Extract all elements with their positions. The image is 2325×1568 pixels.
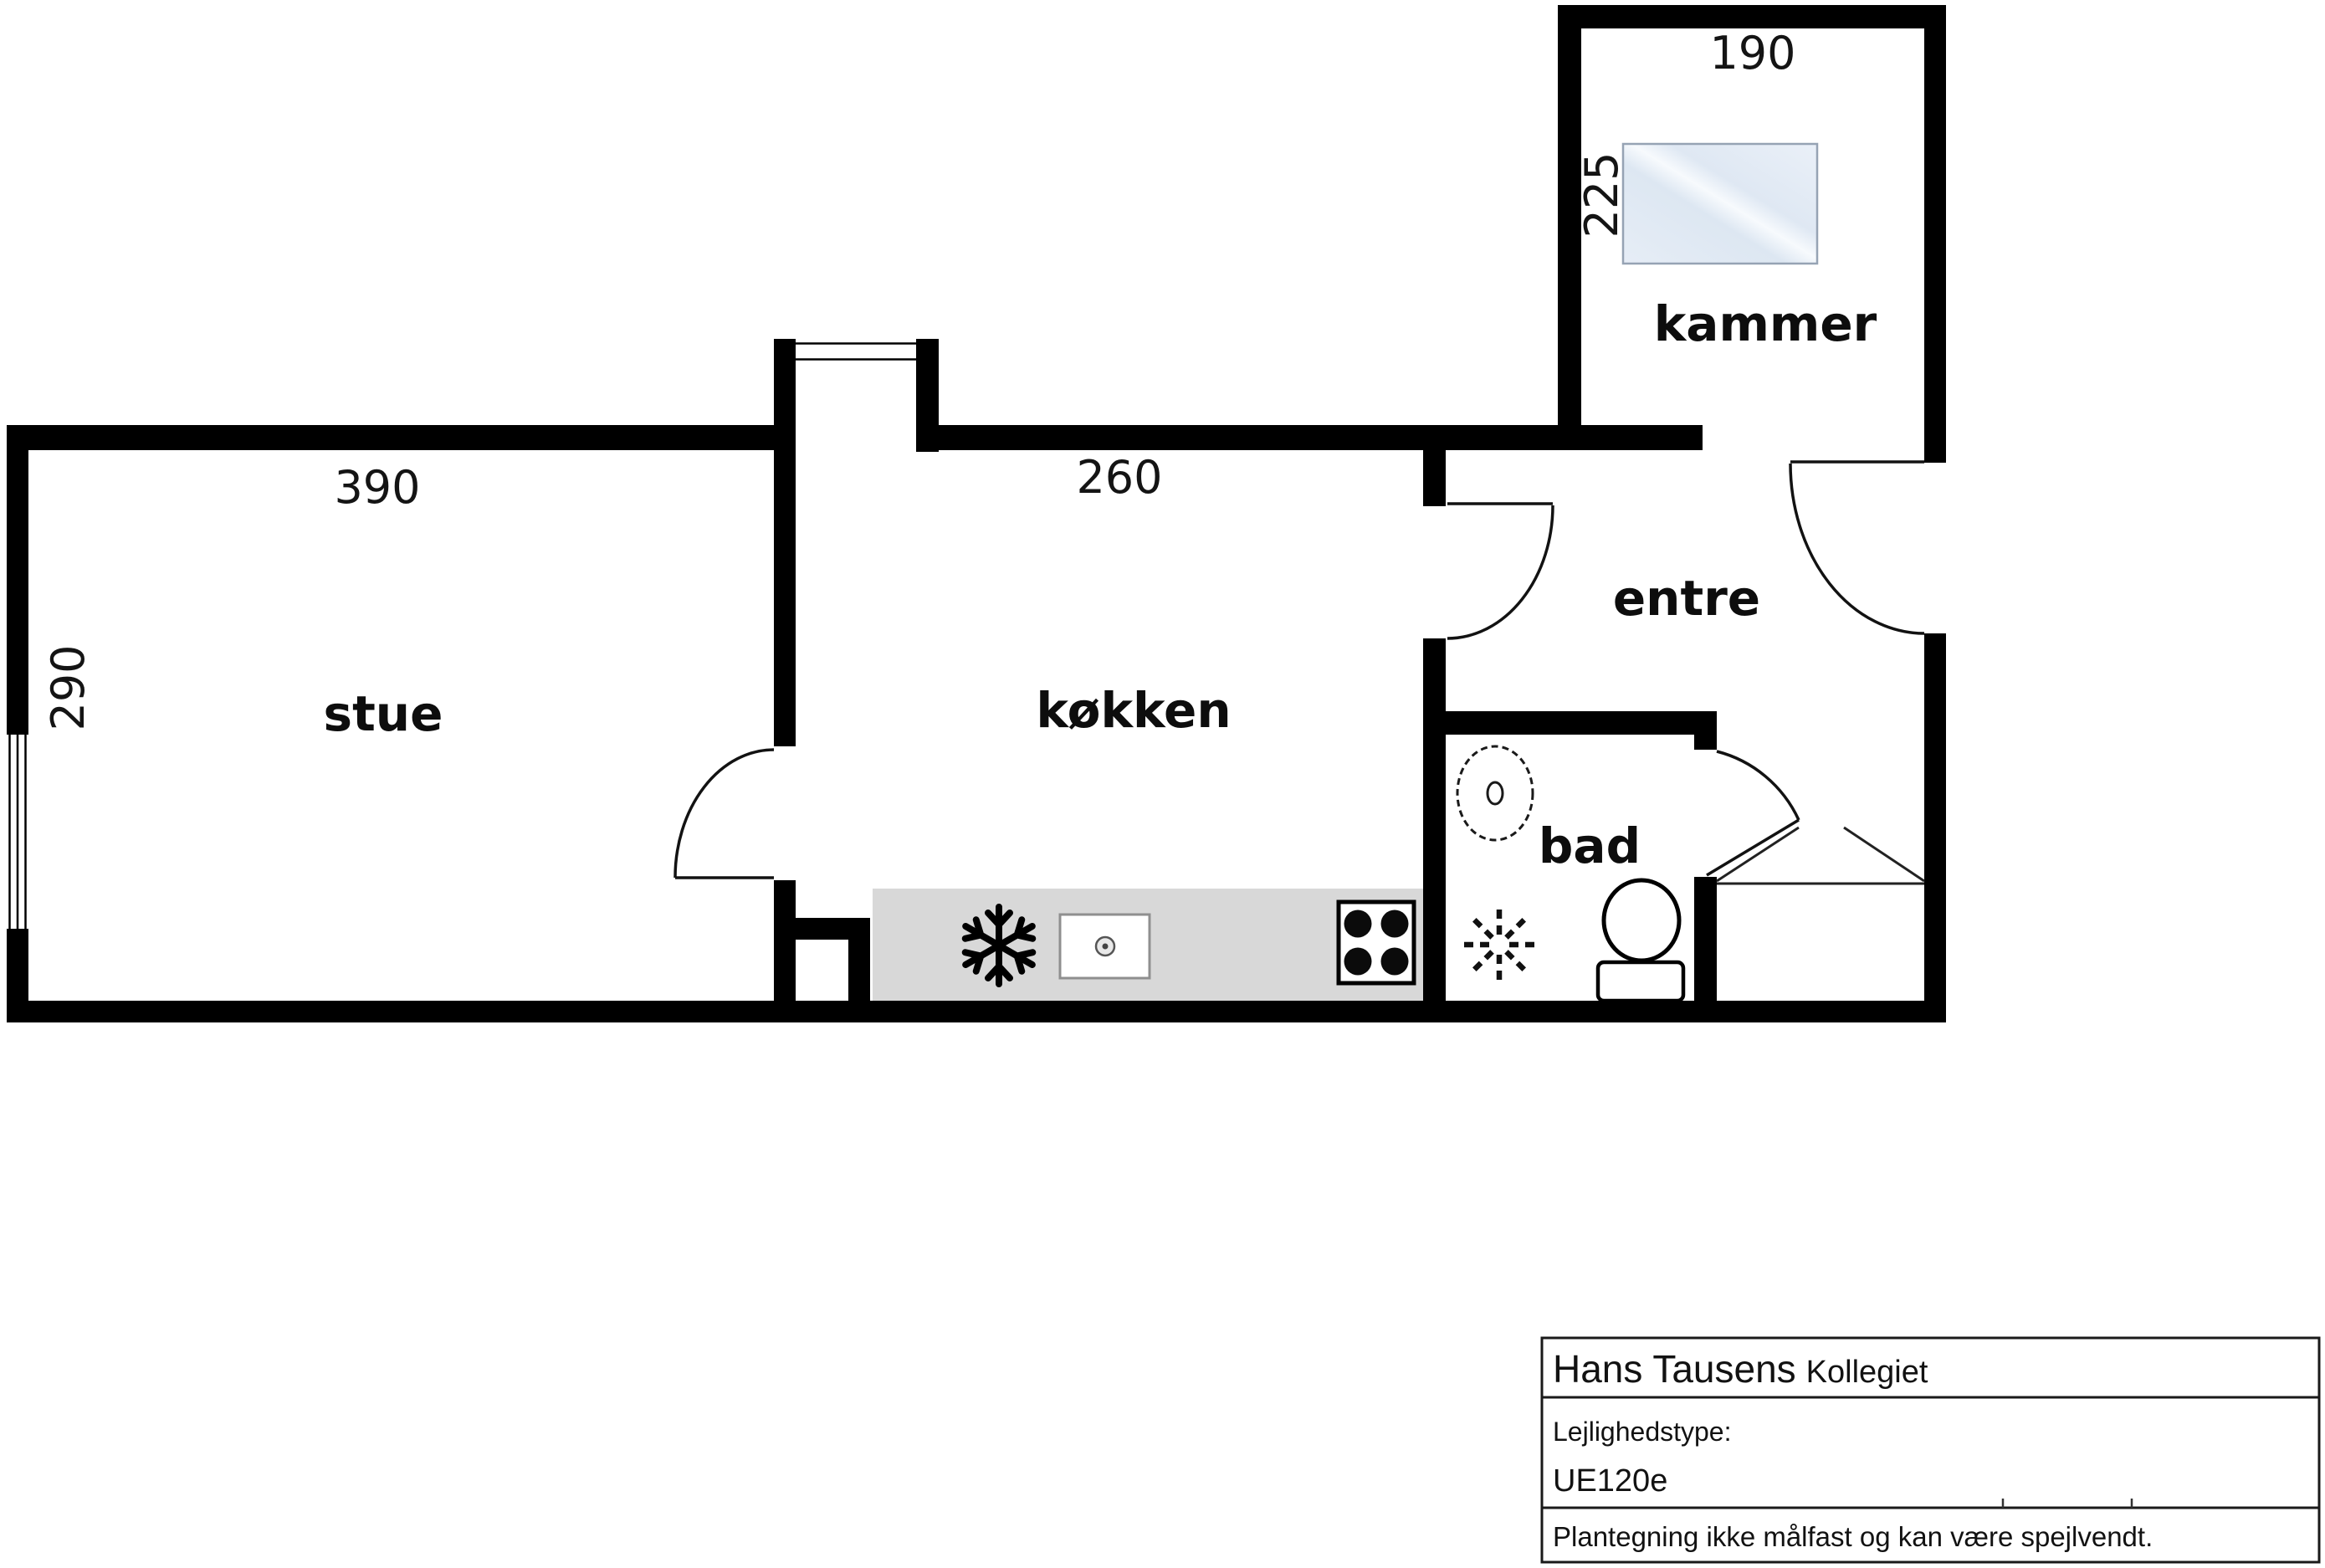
dimension-stue-height: 290 (42, 644, 95, 730)
apartment-type-label: Lejlighedstype: (1553, 1417, 1731, 1447)
building-name-secondary: Kollegiet (1806, 1355, 1928, 1390)
wall-segment (1694, 735, 1717, 750)
building-name-primary: Hans Tausens (1553, 1347, 1796, 1391)
wall-segment (7, 425, 28, 735)
room-label-kokken: køkken (1036, 682, 1231, 739)
room-label-bad: bad (1539, 817, 1641, 874)
door-stue (675, 750, 774, 878)
closet-diagonal (1717, 828, 1799, 881)
dimension-kammer-height: 225 (1575, 151, 1628, 238)
wall-segment (1924, 5, 1946, 463)
floor-drain-star-icon (1460, 905, 1539, 984)
wall-segment (1694, 877, 1717, 1002)
closet-diagonal (1844, 828, 1924, 881)
door-swing-arc (1447, 505, 1553, 638)
door-front-entrance (1790, 462, 1924, 633)
door-swing-arc (675, 750, 774, 878)
hand-basin-icon (1457, 746, 1533, 840)
dimension-kokken-width: 260 (1076, 451, 1162, 504)
stue-window-icon (10, 735, 26, 929)
door-entre (1447, 504, 1553, 638)
wall-segment (848, 940, 870, 1002)
wall-segment (7, 425, 796, 450)
wall-segment (796, 918, 870, 940)
door-swing-arc (1790, 464, 1924, 633)
dimension-kammer-width: 190 (1709, 27, 1795, 79)
toilet-icon (1598, 880, 1683, 1001)
wall-segment (774, 339, 796, 746)
wall-segment (916, 425, 1703, 450)
room-label-kammer: kammer (1654, 295, 1877, 352)
door-leaf (1707, 820, 1799, 875)
wall-segment (1558, 5, 1946, 28)
title-block: Hans TausensKollegiet Lejlighedstype: UE… (1542, 1338, 2319, 1562)
kokken-niche-window-icon (796, 344, 916, 360)
kitchen-sink-icon (1060, 915, 1150, 978)
wall-segment (1924, 633, 1946, 1022)
wall-segment (7, 1001, 1946, 1022)
floor-plan-drawing: stue køkken entre bad kammer 390 290 260… (0, 0, 2325, 1568)
stove-burners-icon (1339, 902, 1414, 983)
room-label-entre: entre (1613, 570, 1760, 627)
wall-segment (1423, 638, 1446, 1002)
dimension-stue-width: 390 (334, 461, 420, 514)
room-label-stue: stue (324, 685, 443, 742)
wall-segment (774, 880, 796, 1002)
apartment-type-value: UE120e (1553, 1463, 1667, 1499)
wardrobe-v-icon (1717, 828, 1924, 884)
floor-plan-page: stue køkken entre bad kammer 390 290 260… (0, 0, 2325, 1568)
wall-segment (1423, 450, 1446, 506)
wall-segment (1423, 711, 1717, 735)
kammer-window-glass (1623, 144, 1817, 264)
disclaimer-note: Plantegning ikke målfast og kan være spe… (1553, 1521, 2153, 1552)
door-swing-arc (1717, 751, 1799, 820)
